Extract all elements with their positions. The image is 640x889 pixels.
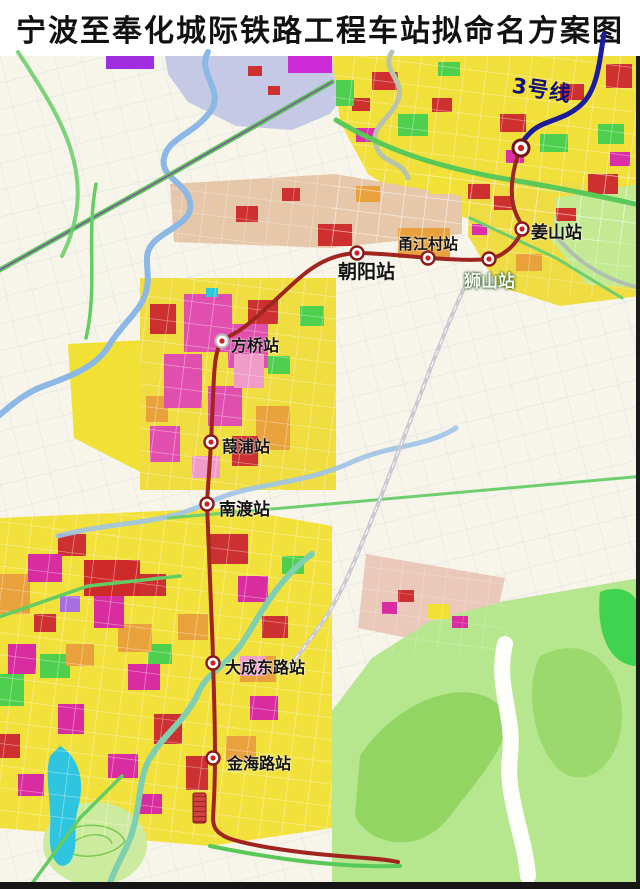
map-canvas	[0, 56, 640, 889]
station-marker-jinhailu	[207, 752, 220, 765]
station-marker-shishan	[483, 253, 496, 266]
station-marker-jiapu	[205, 436, 218, 449]
station-marker-chaoyang	[351, 247, 364, 260]
station-marker-fangqiao	[216, 335, 229, 348]
page-title: 宁波至奉化城际铁路工程车站拟命名方案图	[16, 6, 624, 50]
station-marker-dachengdonglu	[207, 657, 220, 670]
screenshot-page: 宁波至奉化城际铁路工程车站拟命名方案图	[0, 0, 640, 889]
map-border-bottom	[0, 882, 640, 889]
depot-box	[193, 793, 206, 823]
station-marker-nandu	[201, 498, 214, 511]
junction-station-marker	[513, 140, 529, 156]
station-marker-jiangshan	[516, 223, 529, 236]
map-border-right	[636, 56, 640, 889]
station-marker-yongjiangcun	[422, 252, 435, 265]
planning-map: 3号线 姜山站 狮山站 甬江村站 朝阳站 方桥站 葭浦站 南渡站 大成东路站 金…	[0, 56, 640, 889]
title-bar: 宁波至奉化城际铁路工程车站拟命名方案图	[0, 0, 640, 56]
